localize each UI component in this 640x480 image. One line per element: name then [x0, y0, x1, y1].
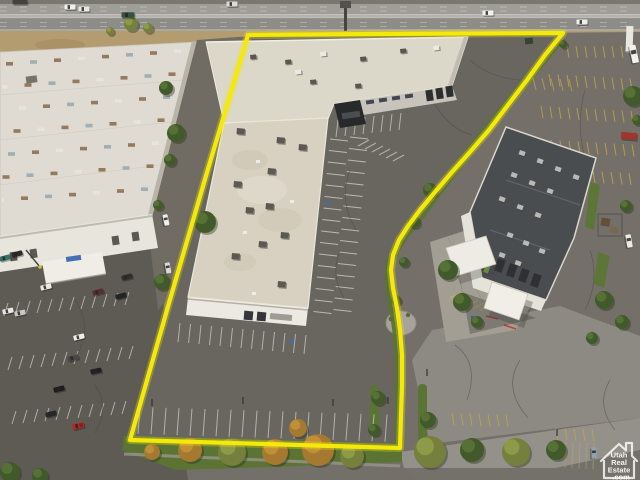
aerial-photo-stage: Utah Real Estate .com	[0, 0, 640, 480]
aerial-photo: Utah Real Estate .com	[0, 0, 640, 480]
atmospheric-haze	[0, 0, 640, 480]
watermark-line-4: .com	[612, 473, 630, 480]
